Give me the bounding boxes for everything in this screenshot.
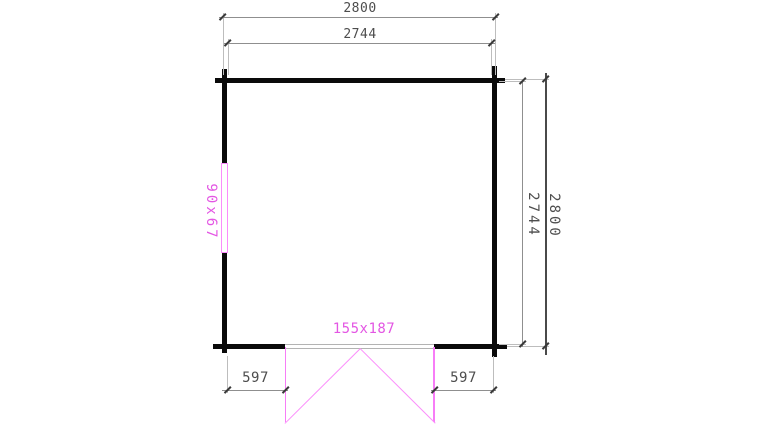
top-wall [215, 78, 505, 83]
right-wall [492, 66, 497, 357]
dim-line-door-left-offset [222, 390, 288, 391]
bottom-wall-left [213, 344, 285, 349]
floor-plan-canvas: 90x67 155x187 2800 2744 2744 2800 597 59… [0, 0, 768, 433]
left-wall-lower [222, 253, 227, 353]
door-swing-right [359, 348, 435, 423]
extension-line [491, 39, 492, 75]
window-symbol [221, 163, 228, 253]
dim-line-width-inner [224, 43, 495, 44]
left-wall-upper [222, 69, 227, 163]
dim-line-width-outer [219, 17, 498, 18]
dim-label-width-inner: 2744 [310, 28, 410, 41]
door-size-label: 155x187 [304, 322, 424, 336]
extension-line [495, 13, 496, 75]
dim-label-door-left-offset: 597 [226, 371, 286, 385]
extension-line [228, 39, 229, 75]
dim-label-height-inner: 2744 [526, 192, 540, 238]
door-swing-left [284, 348, 360, 423]
dim-line-door-right-offset [431, 390, 496, 391]
dim-label-door-right-offset: 597 [434, 371, 494, 385]
dim-label-width-outer: 2800 [310, 2, 410, 15]
door-sill-outer [285, 344, 434, 345]
dim-label-height-outer: 2800 [547, 193, 561, 239]
dim-line-height-inner [522, 81, 523, 347]
bottom-wall-right [434, 344, 507, 349]
window-size-label: 90x67 [204, 183, 218, 240]
